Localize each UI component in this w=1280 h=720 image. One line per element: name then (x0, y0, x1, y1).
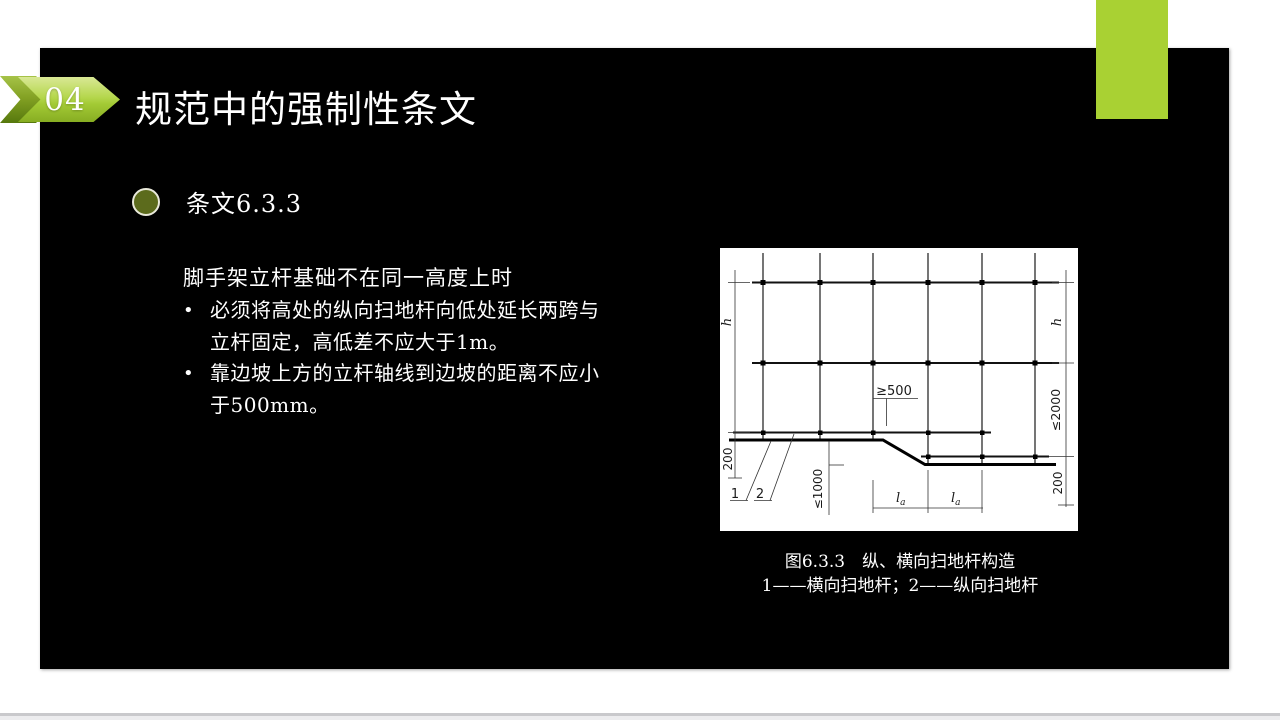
callout-label-2: 2 (756, 487, 764, 502)
body-text-block: 脚手架立杆基础不在同一高度上时 • 必须将高处的纵向扫地杆向低处延长两跨与 立杆… (183, 262, 613, 421)
section-heading-row: 条文6.3.3 (132, 184, 302, 219)
dim-label-h-right: h (1050, 318, 1065, 326)
callout-label-1: 1 (731, 487, 739, 502)
dim-label-ge500: ≥500 (876, 384, 912, 399)
dim-label-la-1: la (896, 491, 906, 508)
scaffold-diagram: h 200 h ≤2000 200 ≥500 ≤1000 (720, 248, 1078, 531)
dim-label-h-left: h (720, 318, 735, 326)
dim-label-le1000: ≤1000 (811, 469, 825, 510)
dim-label-la-2: la (951, 491, 961, 508)
body-intro-line: 脚手架立杆基础不在同一高度上时 (183, 262, 613, 295)
bullet-text: 必须将高处的纵向扫地杆向低处延长两跨与 立杆固定，高低差不应大于1m。 (210, 295, 600, 358)
bullet-dot-icon: • (183, 358, 210, 421)
page-number-banner: 04 (0, 74, 124, 124)
section-heading: 条文6.3.3 (186, 184, 302, 219)
bullet-text: 靠边坡上方的立杆轴线到边坡的距离不应小 于500mm。 (210, 358, 600, 421)
bullet-line: 于500mm。 (210, 390, 600, 422)
list-item: • 靠边坡上方的立杆轴线到边坡的距离不应小 于500mm。 (183, 358, 613, 421)
figure-image: h 200 h ≤2000 200 ≥500 ≤1000 (720, 248, 1078, 531)
dim-label-200-right: 200 (1051, 472, 1065, 495)
bullet-line: 立杆固定，高低差不应大于1m。 (210, 327, 600, 359)
figure-caption-line1: 图6.3.3 纵、横向扫地杆构造 (700, 550, 1100, 574)
slide-title: 规范中的强制性条文 (135, 79, 477, 133)
bottom-strip (0, 716, 1280, 720)
bullet-line: 靠边坡上方的立杆轴线到边坡的距离不应小 (210, 358, 600, 390)
figure-caption: 图6.3.3 纵、横向扫地杆构造 1——横向扫地杆；2——纵向扫地杆 (700, 550, 1100, 598)
dim-label-200-left: 200 (721, 448, 735, 471)
olive-circle-bullet-icon (132, 188, 160, 216)
list-item: • 必须将高处的纵向扫地杆向低处延长两跨与 立杆固定，高低差不应大于1m。 (183, 295, 613, 358)
bullet-dot-icon: • (183, 295, 210, 358)
dim-label-le2000: ≤2000 (1048, 389, 1063, 431)
bullet-line: 必须将高处的纵向扫地杆向低处延长两跨与 (210, 295, 600, 327)
accent-rectangle (1096, 0, 1168, 119)
page-number: 04 (30, 77, 100, 122)
figure-caption-line2: 1——横向扫地杆；2——纵向扫地杆 (700, 574, 1100, 598)
